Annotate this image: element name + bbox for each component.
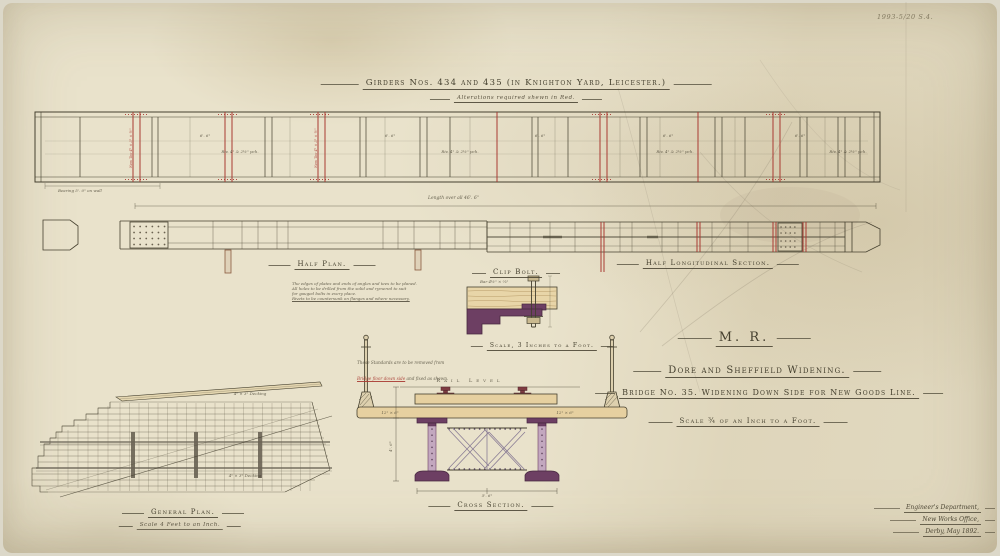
clip-bolt-scale-label: Scale, 3 Inches to a Foot. xyxy=(471,342,613,351)
imprint-place-date: Derby, May 1892. xyxy=(893,528,995,537)
rivet-pitch-note: Riv. 4" & 2½" pch. xyxy=(829,149,866,154)
panel-dimension: 6'. 6" xyxy=(200,133,211,138)
project-title: Dore and Sheffield Widening. xyxy=(633,365,881,378)
baulk-dimension: 12" × 6" xyxy=(556,410,573,415)
general-plan-label: General Plan. xyxy=(122,508,244,518)
red-alteration-note: New Tee 4" × 3" × ½" xyxy=(129,128,133,168)
decking-note: 4" × 3" Decking xyxy=(234,391,267,396)
half-longitudinal-section-label: Half Longitudinal Section. xyxy=(617,259,799,269)
drawing-scale: Scale ¾ of an Inch to a Foot. xyxy=(649,417,848,427)
panel-dimension: 6'. 6" xyxy=(535,133,546,138)
specification-notes: The edges of plates and ends of angles a… xyxy=(292,281,417,301)
waybeam-timber xyxy=(415,394,557,404)
cross-section-label: Cross Section. xyxy=(428,501,553,511)
decking-note: 4" × 3" Decking xyxy=(229,473,262,478)
panel-dimension: 6'. 6" xyxy=(795,133,806,138)
panel-dimension: 6'. 6" xyxy=(663,133,674,138)
standards-note: These Standards are to be removed from B… xyxy=(357,360,448,384)
drawing-subtitle: Alterations required shewn in Red. xyxy=(430,95,602,103)
red-alteration-note: New Tee 4" × 3" × ½" xyxy=(314,128,318,168)
clip-bolt-detail xyxy=(467,276,557,334)
imprint-department: Engineer's Department, xyxy=(874,504,995,513)
cross-section-height-dimension: 4'. 6" xyxy=(388,441,393,452)
baulk-dimension: 12" × 6" xyxy=(381,410,398,415)
railway-company-initials: M. R. xyxy=(678,330,811,347)
drawing-title: Girders Nos. 434 and 435 (in Knighton Ya… xyxy=(321,78,712,90)
lattice-bracing xyxy=(447,428,527,470)
bridge-drawing-title: Bridge No. 35. Widening Down Side for Ne… xyxy=(595,388,943,399)
main-girder-right xyxy=(525,418,559,481)
rivet-pitch-note: Riv. 4" & 2½" pch. xyxy=(441,149,478,154)
length-overall-dimension: Length over all 46'. 6" xyxy=(428,196,479,201)
rail-level-label: Rail Level xyxy=(436,378,503,384)
rail-lines-plan xyxy=(36,442,332,471)
bearing-note: Bearing 5'. 0" on wall xyxy=(58,188,102,193)
half-plan-label: Half Plan. xyxy=(269,260,376,270)
imprint-office: New Works Office, xyxy=(890,516,995,525)
red-note-fragment: Bridge floor down side xyxy=(357,376,405,381)
general-plan-view xyxy=(32,382,332,497)
drawing-sheet-scan: 1993-5/20 S.4. Girders Nos. 434 and 435 … xyxy=(0,0,1000,556)
panel-dimension: 6'. 6" xyxy=(385,133,396,138)
clip-bar-note: Bar 4½" × ⅝" xyxy=(480,279,508,284)
rivet-pitch-note: Riv. 4" & 2½" pch. xyxy=(221,149,258,154)
general-plan-scale-label: Scale 4 Feet to an Inch. xyxy=(119,522,241,530)
archive-reference-number: 1993-5/20 S.4. xyxy=(877,13,933,21)
red-alteration-stiffeners xyxy=(125,112,786,182)
main-girder-left xyxy=(415,418,449,481)
rivet-pitch-note: Riv. 4" & 2½" pch. xyxy=(656,149,693,154)
note-line: Rivets to be countersunk on flanges and … xyxy=(292,296,417,301)
cross-section-width-dimension: 5'. 6" xyxy=(482,493,493,498)
splice-rivets xyxy=(134,227,166,245)
clip-bolt-label: Clip Bolt. xyxy=(472,268,560,278)
